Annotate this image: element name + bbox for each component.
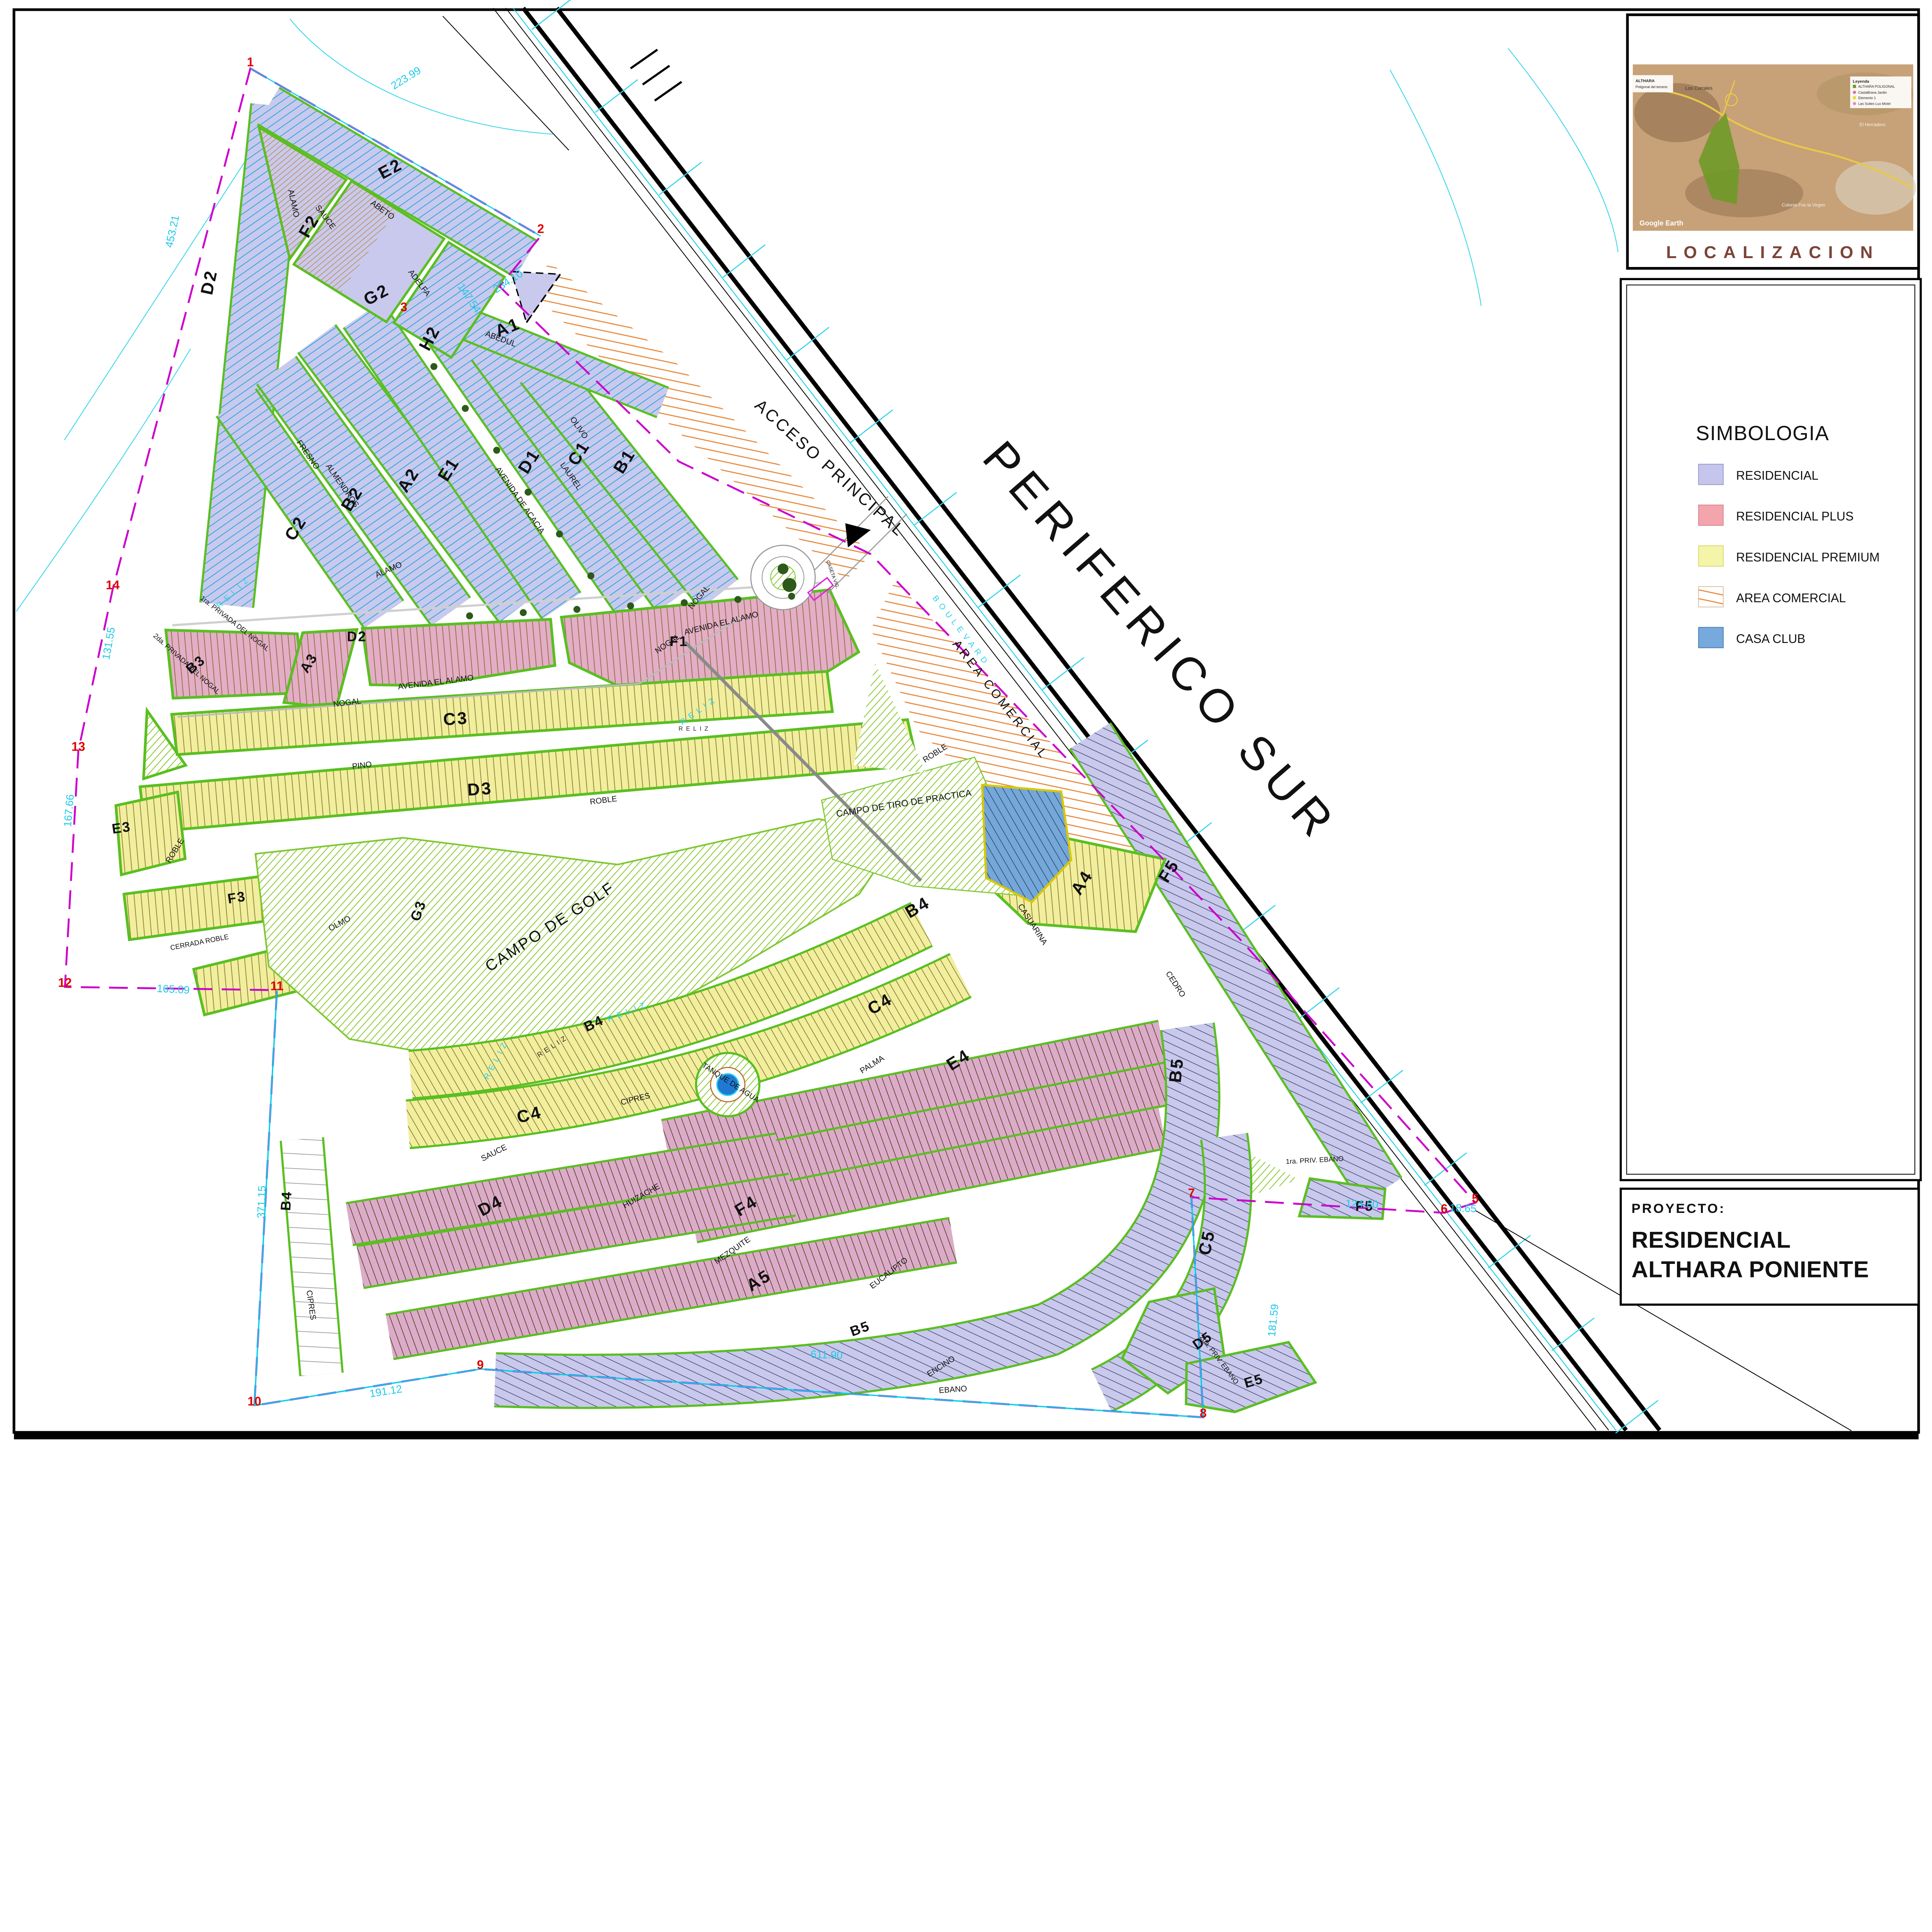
proyecto-panel: PROYECTO: RESIDENCIAL ALTHARA PONIENTE (1621, 1189, 1918, 1304)
block-label-C3: C3 (442, 709, 469, 729)
glorieta (751, 545, 815, 610)
street-label: RELIZ (679, 726, 711, 732)
google-earth-watermark: Google Earth (1639, 219, 1683, 227)
boundary-vertex-6: 6 (1441, 1202, 1448, 1216)
map-place-label: Los Corrales (1685, 86, 1713, 91)
sheet-bottom-bar (14, 1432, 1918, 1439)
block-label-F1: F1 (670, 633, 688, 649)
tree-icon (735, 596, 742, 603)
simbologia-title: SIMBOLOGIA (1696, 422, 1829, 445)
tree-icon (525, 489, 532, 496)
block-label-F3: F3 (226, 888, 247, 906)
tree-icon (627, 602, 634, 609)
boundary-vertex-5: 5 (1472, 1192, 1479, 1206)
boundary-vertex-14: 14 (106, 578, 120, 592)
tree-icon (778, 563, 789, 574)
boundary-vertex-10: 10 (248, 1394, 262, 1408)
boundary-vertex-9: 9 (477, 1358, 484, 1372)
leyenda-item: Las Suites Lux Motel (1858, 102, 1891, 106)
inset-site-sub: Poligonal del terreno (1636, 85, 1668, 89)
tree-icon (587, 572, 594, 579)
legend-label: RESIDENCIAL PLUS (1736, 509, 1854, 523)
legend-swatch-residencial-premium (1699, 546, 1723, 566)
site-plan-sheet: PERIFERICO SURACCESO PRINCIPALBOULEVARDA… (0, 0, 1932, 1449)
boundary-vertex-13: 13 (71, 740, 85, 753)
block-label-D3: D3 (467, 779, 493, 799)
tree-icon (466, 612, 473, 619)
localizacion-panel: ALTHARA Poligonal del terreno Leyenda AL… (1628, 15, 1918, 268)
legend-swatch-area-comercial (1699, 587, 1723, 607)
legend-label: RESIDENCIAL PREMIUM (1736, 550, 1879, 564)
boundary-dimension: 165.09 (156, 982, 190, 996)
tree-icon (462, 405, 469, 412)
boundary-vertex-7: 7 (1188, 1186, 1195, 1200)
boundary-vertex-8: 8 (1200, 1406, 1207, 1420)
tree-icon (520, 609, 527, 616)
boundary-vertex-3: 3 (400, 300, 407, 314)
block-label-E3: E3 (111, 818, 132, 837)
tree-icon (782, 578, 796, 592)
boundary-vertex-11: 11 (270, 979, 284, 993)
boundary-dimension: 371.15 (255, 1185, 268, 1219)
legend-label: RESIDENCIAL (1736, 469, 1818, 483)
boundary-vertex-1: 1 (247, 55, 254, 69)
boundary-dimension: 611.90 (810, 1348, 843, 1361)
proyecto-name-2: ALTHARA PONIENTE (1631, 1257, 1869, 1282)
map-place-label: Colonia Fos la Virgen (1782, 202, 1825, 208)
leyenda-item: ALTHARA POLIGONAL (1858, 85, 1895, 88)
legend-swatch-casa-club (1699, 628, 1723, 648)
tree-icon (573, 606, 580, 613)
inset-site-label: ALTHARA (1636, 79, 1655, 83)
tree-icon (430, 363, 437, 370)
boundary-dimension: 124.60 (1345, 1197, 1379, 1211)
leyenda-title: Leyenda (1853, 80, 1869, 84)
tree-icon (788, 593, 795, 600)
tree-icon (493, 447, 500, 454)
block-label-B5: B5 (1166, 1056, 1187, 1083)
legend-swatch-residencial (1699, 464, 1723, 485)
simbologia-panel: SIMBOLOGIA RESIDENCIAL RESIDENCIAL PLUS … (1621, 279, 1920, 1180)
legend-label: CASA CLUB (1736, 632, 1805, 646)
block-band (302, 1139, 321, 1374)
map-place-label: El Herradero (1860, 122, 1886, 127)
block-label-B4: B4 (277, 1190, 295, 1211)
legend-label: AREA COMERCIAL (1736, 591, 1846, 605)
block-label-D2: D2 (347, 629, 367, 645)
tree-icon (556, 531, 563, 537)
proyecto-name-1: RESIDENCIAL (1631, 1227, 1791, 1253)
boundary-vertex-2: 2 (537, 222, 544, 236)
leyenda-item: Elemento 1 (1858, 96, 1876, 100)
proyecto-label: PROYECTO: (1631, 1201, 1725, 1216)
leyenda-item: CastaBrava Jardin (1858, 90, 1887, 94)
boundary-vertex-12: 12 (58, 976, 72, 990)
legend-swatch-residencial-plus (1699, 505, 1723, 526)
localizacion-title: LOCALIZACION (1666, 243, 1879, 262)
